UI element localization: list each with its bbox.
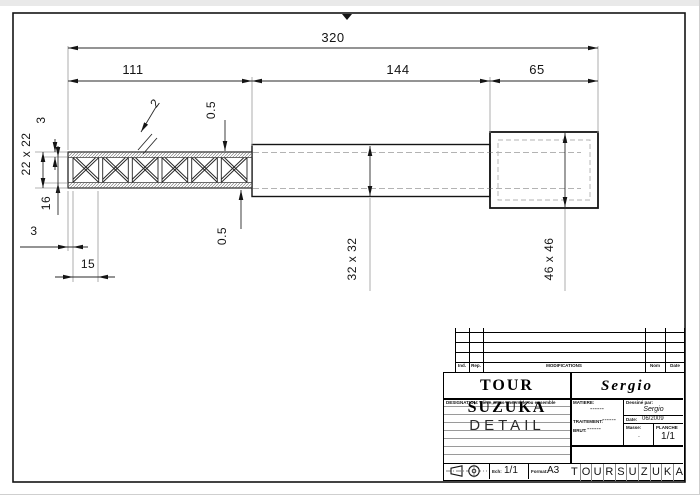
dim-chord-thickness: 3 xyxy=(34,116,48,123)
dim-diagonal-thickness: 2 xyxy=(147,96,163,110)
dim-clearance-bottom: 0.5 xyxy=(215,227,229,245)
dim-middle-segment: 144 xyxy=(386,62,409,77)
matiere-value: ------ xyxy=(573,406,621,413)
author-name: Sergio xyxy=(571,375,683,397)
dim-web-height: 16 xyxy=(39,196,53,210)
rev-col-date: Date xyxy=(665,363,685,368)
footer-letter: U xyxy=(650,464,662,481)
date-value: 06/2009 xyxy=(642,416,664,422)
footer-letter-cells: T O U R S U Z U K A xyxy=(569,464,685,481)
sleeve-46-outline xyxy=(490,132,598,208)
matiere-label: MATIERE: xyxy=(573,400,594,405)
footer-letter: K xyxy=(661,464,673,481)
lattice-beam xyxy=(68,152,252,188)
cad-drawing-page: 320 111 144 65 22 x 22 3 16 3 15 0.5 0.5… xyxy=(0,0,700,495)
dim-sleeve-section: 46 x 46 xyxy=(542,238,556,281)
planche-value: 1/1 xyxy=(654,431,682,442)
traitement-label: TRAITEMENT: xyxy=(573,419,603,424)
masse-label: Masse: xyxy=(626,425,641,430)
planche-label: PLANCHE xyxy=(656,425,678,430)
rev-col-rep: Rep. xyxy=(469,363,483,368)
drawn-by-value: Sergio xyxy=(626,406,681,413)
format-label: Format: xyxy=(531,469,548,474)
traitement-value: ------ xyxy=(602,417,616,424)
format-value: A3 xyxy=(547,465,559,476)
footer-letter: R xyxy=(603,464,615,481)
drawing-title: DETAIL xyxy=(444,417,570,434)
footer-letter: U xyxy=(626,464,638,481)
dim-end-post: 3 xyxy=(30,224,37,238)
dim-clearance-top: 0.5 xyxy=(204,101,218,119)
footer-letter: A xyxy=(673,464,685,481)
footer-letter: T xyxy=(569,464,580,481)
scale-label: Ech: xyxy=(492,469,502,474)
dim-left-segment: 111 xyxy=(122,62,143,77)
rev-col-ind: Ind. xyxy=(455,363,469,368)
dim-right-segment: 65 xyxy=(529,62,544,77)
title-block: TOUR SUZUKA Sergio DESIGNATION: Pièce, s… xyxy=(443,372,685,481)
rev-col-modifications: MODIFICATIONS xyxy=(483,363,645,368)
part-views xyxy=(68,132,598,208)
designation-label: DESIGNATION: Pièce, sous-ensemble ou ens… xyxy=(446,400,568,405)
projection-symbol-icon xyxy=(444,463,489,479)
revision-table: Ind. Rep. MODIFICATIONS Nom Date xyxy=(455,328,685,372)
dim-beam-section: 22 x 22 xyxy=(19,133,33,176)
footer-letter: O xyxy=(580,464,592,481)
masse-value: . xyxy=(626,432,652,439)
footer-letter: S xyxy=(615,464,627,481)
drawn-by-label: Dessiné par: xyxy=(626,400,653,405)
centering-mark-icon xyxy=(342,14,352,20)
rev-col-nom: Nom xyxy=(645,363,665,368)
dim-total: 320 xyxy=(321,30,344,45)
brut-value: ------ xyxy=(587,426,601,433)
scale-value: 1/1 xyxy=(504,465,518,476)
footer-letter: U xyxy=(591,464,603,481)
dim-cell-pitch: 15 xyxy=(81,257,95,271)
footer-letter: Z xyxy=(638,464,650,481)
brut-label: BRUT: xyxy=(573,428,587,433)
date-label: Date: xyxy=(626,417,637,422)
dim-tube-section: 32 x 32 xyxy=(345,238,359,281)
project-title: TOUR SUZUKA xyxy=(444,375,570,397)
